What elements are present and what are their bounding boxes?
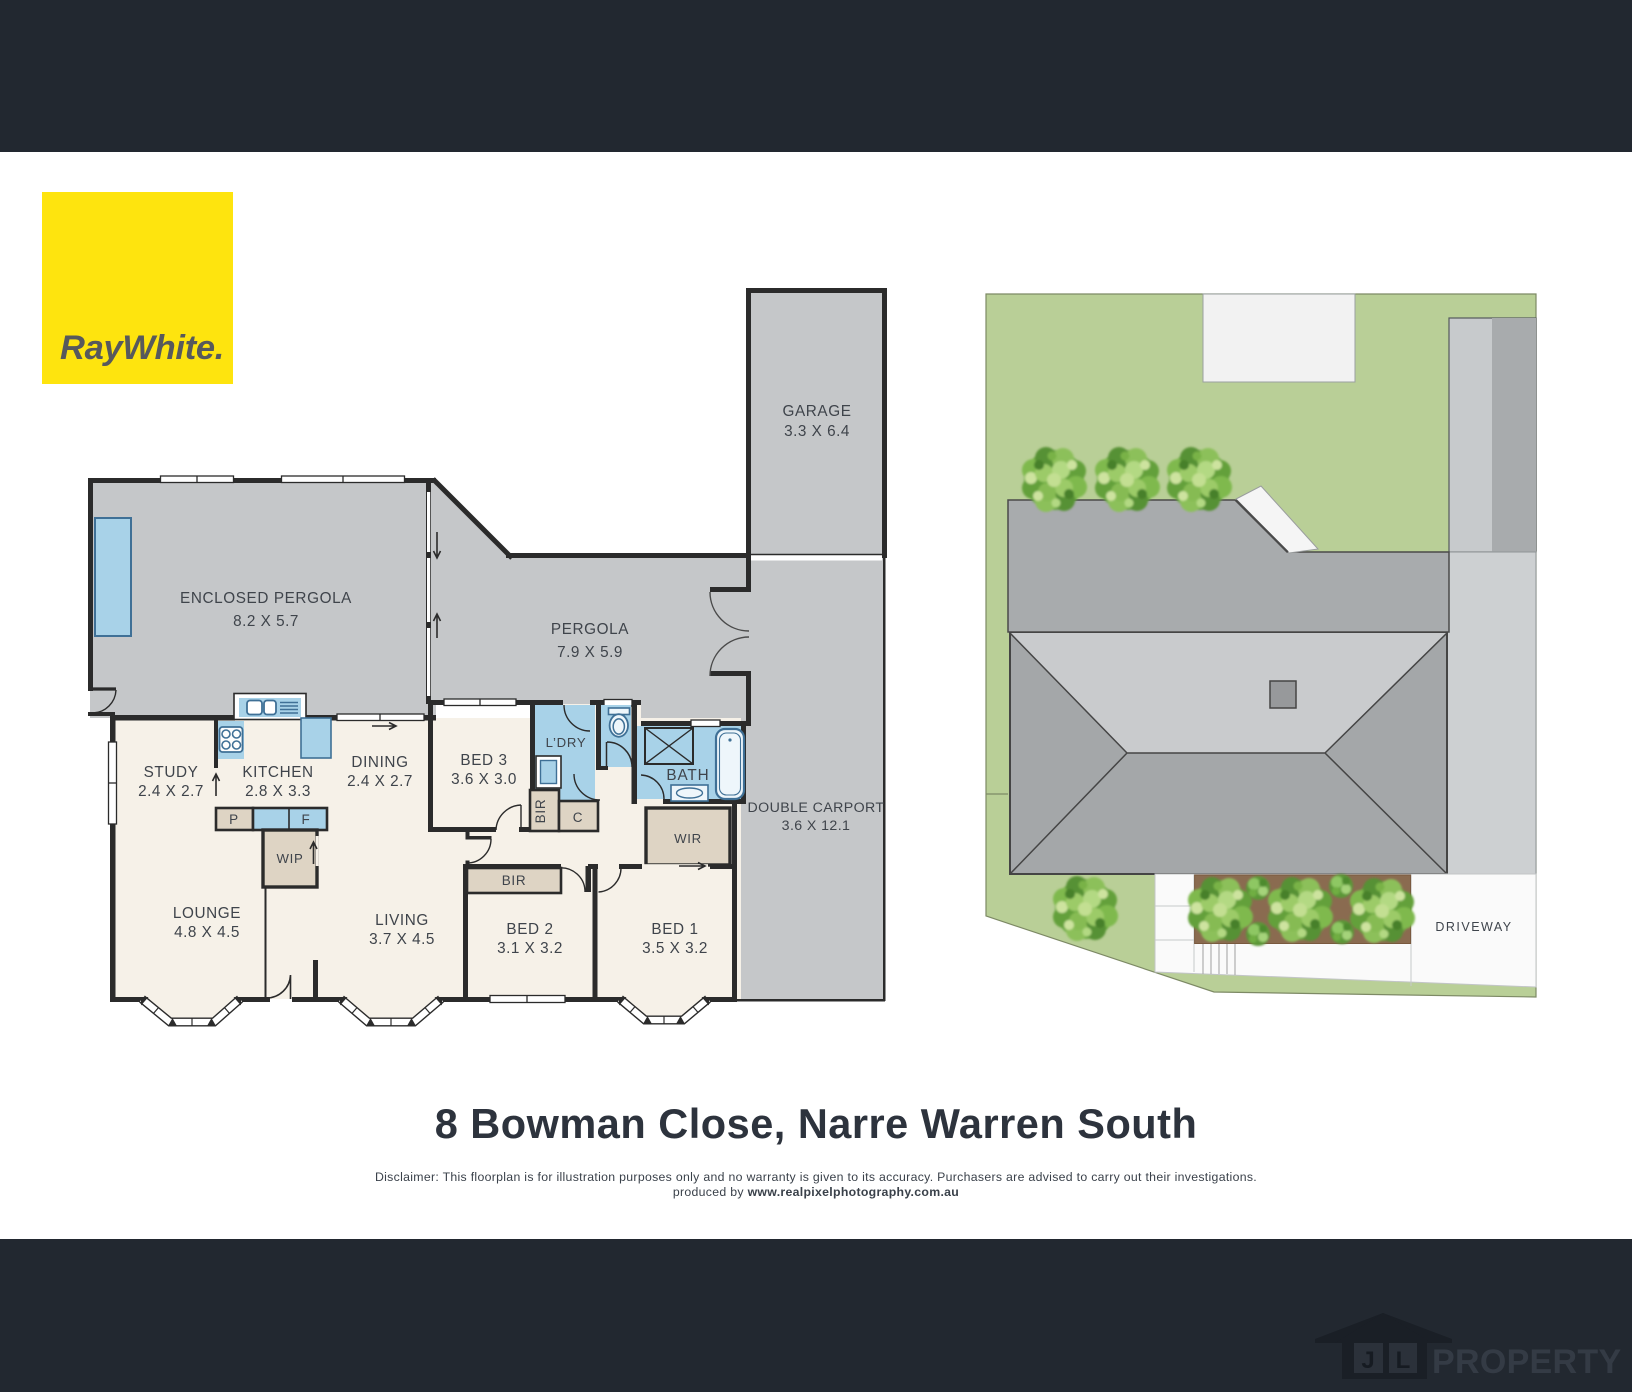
- svg-text:GARAGE: GARAGE: [782, 403, 851, 420]
- svg-text:3.5 X 3.2: 3.5 X 3.2: [642, 940, 708, 957]
- svg-text:3.1 X 3.2: 3.1 X 3.2: [497, 940, 563, 957]
- svg-text:3.3 X 6.4: 3.3 X 6.4: [784, 423, 850, 440]
- svg-text:WIP: WIP: [276, 851, 303, 866]
- svg-text:ENCLOSED PERGOLA: ENCLOSED PERGOLA: [180, 590, 352, 607]
- svg-text:KITCHEN: KITCHEN: [242, 764, 313, 781]
- svg-text:2.8 X 3.3: 2.8 X 3.3: [245, 783, 311, 800]
- svg-text:DRIVEWAY: DRIVEWAY: [1435, 920, 1512, 934]
- svg-text:2.4 X 2.7: 2.4 X 2.7: [347, 773, 413, 790]
- svg-text:3.7 X 4.5: 3.7 X 4.5: [369, 931, 435, 948]
- svg-text:DOUBLE CARPORT: DOUBLE CARPORT: [748, 800, 885, 816]
- svg-text:BIR: BIR: [502, 873, 527, 888]
- svg-text:LOUNGE: LOUNGE: [173, 905, 241, 922]
- svg-text:DINING: DINING: [351, 754, 408, 771]
- svg-text:BIR: BIR: [533, 799, 548, 824]
- svg-text:7.9 X 5.9: 7.9 X 5.9: [557, 644, 623, 661]
- svg-text:BATH: BATH: [666, 767, 709, 784]
- svg-text:P: P: [229, 812, 239, 827]
- svg-text:F: F: [302, 812, 311, 827]
- svg-text:LIVING: LIVING: [375, 912, 429, 929]
- svg-text:3.6 X 12.1: 3.6 X 12.1: [782, 818, 851, 834]
- svg-text:PERGOLA: PERGOLA: [551, 621, 629, 638]
- svg-text:2.4 X 2.7: 2.4 X 2.7: [138, 783, 204, 800]
- svg-text:STUDY: STUDY: [144, 764, 199, 781]
- svg-text:BED 1: BED 1: [651, 921, 698, 938]
- svg-text:WIR: WIR: [674, 831, 702, 846]
- svg-text:BED 3: BED 3: [460, 752, 507, 769]
- svg-text:8.2 X 5.7: 8.2 X 5.7: [233, 613, 299, 630]
- svg-text:3.6 X 3.0: 3.6 X 3.0: [451, 771, 517, 788]
- svg-text:L’DRY: L’DRY: [546, 735, 587, 750]
- svg-text:4.8 X 4.5: 4.8 X 4.5: [174, 924, 240, 941]
- svg-text:C: C: [573, 810, 583, 825]
- svg-text:BED 2: BED 2: [506, 921, 553, 938]
